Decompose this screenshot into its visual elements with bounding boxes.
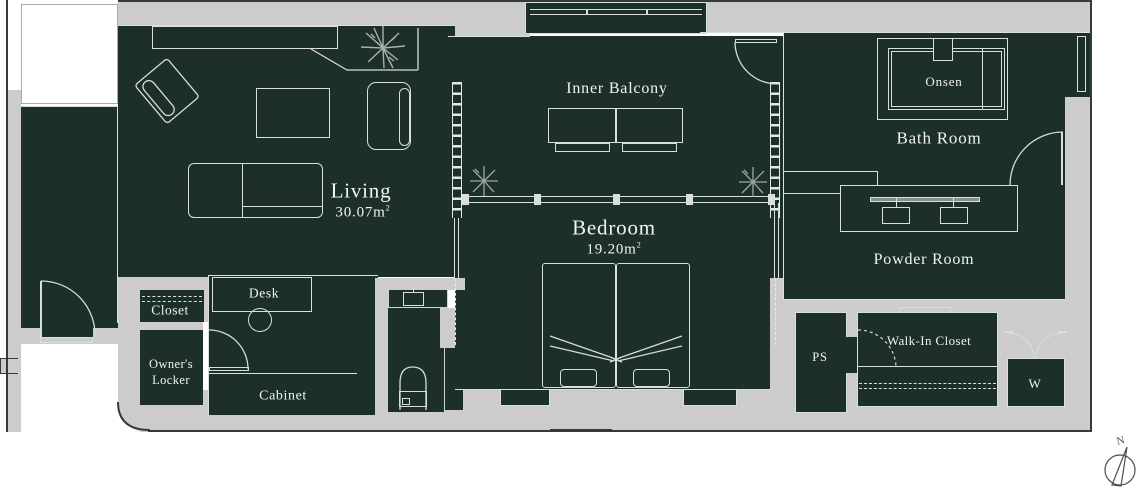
- area-value: 19.20: [586, 241, 624, 257]
- hall-line-right-a: [774, 203, 775, 278]
- walk-in-closet-name: Walk-In Closet: [887, 333, 971, 348]
- faucet-tick-left: [896, 198, 897, 208]
- toilet-sink: [403, 292, 424, 306]
- bench-seat-right: [622, 143, 677, 152]
- bench-back-left: [548, 108, 616, 143]
- window-track-line1: [530, 9, 702, 10]
- handrail-post-3: [613, 194, 620, 205]
- outline-bottom: [148, 430, 1092, 432]
- closet-name: Closet: [151, 303, 189, 318]
- vanity-counter: [840, 185, 1018, 232]
- faucet-tick-right: [953, 198, 954, 208]
- bath-window-glazing: [1077, 36, 1086, 92]
- wic-divider-line: [857, 366, 998, 367]
- room-label-laundry: W: [1028, 377, 1041, 391]
- owners-locker-line1: Owner's: [149, 356, 193, 372]
- inner-balcony-name: Inner Balcony: [566, 80, 667, 97]
- powder-name: Powder Room: [874, 251, 975, 268]
- bedroom-name: Bedroom: [572, 215, 656, 239]
- room-label-bath: Bath Room: [896, 130, 981, 149]
- vanity-mirror: [870, 197, 980, 202]
- wall-closet-band-lower: [140, 322, 203, 330]
- sofa-seam-horizontal: [242, 206, 322, 207]
- fixture-label-desk: Desk: [249, 287, 279, 302]
- pocket-door-dashed-left: [455, 278, 456, 345]
- handrail-post-1: [462, 194, 469, 205]
- floor-plan: Living 30.07m2 Inner Balcony Bedroom 19.…: [0, 0, 1142, 488]
- floor-toilet-east-nook: [445, 348, 463, 410]
- area-unit: m: [624, 241, 636, 257]
- living-name: Living: [331, 178, 392, 202]
- outline-bottom-mark: [550, 429, 612, 432]
- entry-threshold: [40, 337, 93, 343]
- wall-toilet-left: [375, 290, 388, 415]
- powder-shelf-line-upper: [783, 171, 877, 172]
- north-compass-icon: [1105, 447, 1135, 486]
- room-label-bedroom: Bedroom: [572, 216, 656, 239]
- floor-living: [118, 25, 455, 277]
- powder-bottom-edge: [783, 299, 1065, 300]
- corridor-top-edge: [21, 106, 118, 107]
- pillow-left: [560, 369, 597, 387]
- wic-hanger-rod: [859, 383, 996, 389]
- column-right: [683, 389, 737, 406]
- hall-line-right-b: [778, 203, 779, 278]
- bench-back-right: [616, 108, 683, 143]
- floor-entry-door-gap: [40, 328, 93, 337]
- area-exponent: 2: [637, 240, 642, 249]
- desk-name: Desk: [249, 286, 279, 301]
- toilet-sink-tick: [413, 287, 414, 292]
- bath-top-edge: [700, 32, 1090, 33]
- ps-name: PS: [812, 350, 828, 364]
- room-label-owners-locker: Owner's Locker: [149, 356, 193, 388]
- bath-door-leaf: [1061, 132, 1063, 185]
- outline-top: [118, 0, 1092, 2]
- outline-right: [1090, 0, 1092, 432]
- sink-left: [882, 207, 910, 224]
- room-label-closet: Closet: [151, 304, 189, 319]
- handrail-post-5: [768, 194, 775, 205]
- hall-line-left-b: [458, 218, 459, 278]
- chaise-cushion: [399, 88, 410, 146]
- bifold-tick-right: [1058, 331, 1067, 333]
- cabinet-top-edge: [209, 373, 357, 374]
- powder-shelf-line-lower: [783, 193, 840, 194]
- wic-threshold: [899, 307, 951, 313]
- bedroom-bottom-edge: [455, 389, 770, 390]
- coffee-table: [256, 88, 330, 138]
- outside-void: [21, 4, 118, 104]
- area-unit: m: [373, 204, 385, 220]
- wall-toilet-right: [440, 308, 455, 348]
- bench-seat-left: [555, 143, 610, 152]
- desk-door-leaf: [209, 367, 249, 371]
- compass-north-label: N: [1115, 434, 1126, 448]
- floor-entry-corridor: [21, 107, 118, 328]
- pillow-right: [633, 369, 670, 387]
- room-label-powder: Powder Room: [874, 251, 975, 269]
- room-area-living: 30.07m2: [335, 203, 390, 221]
- wall-stub-ps-wic: [846, 337, 857, 373]
- bifold-tick-left: [1004, 331, 1013, 333]
- room-label-ps: PS: [812, 351, 828, 365]
- bath-name: Bath Room: [896, 129, 981, 148]
- room-area-bedroom: 19.20m2: [586, 240, 641, 258]
- corridor-right-edge: [117, 107, 118, 323]
- window-track-line2: [530, 14, 702, 15]
- balcony-door-leaf: [735, 39, 777, 43]
- room-label-walk-in-closet: Walk-In Closet: [887, 334, 971, 348]
- hall-line-left-a: [454, 218, 455, 278]
- room-label-inner-balcony: Inner Balcony: [566, 80, 667, 98]
- wall-toilet-top: [375, 278, 465, 290]
- room-label-living: Living: [331, 179, 392, 202]
- balcony-handrail: [465, 196, 775, 203]
- north-letter: N: [1115, 434, 1126, 448]
- onsen-name: Onsen: [925, 74, 962, 89]
- sofa-seam-vertical: [242, 163, 243, 218]
- outline-left: [6, 0, 8, 432]
- balcony-top-edge: [448, 36, 530, 37]
- floor-walk-in-closet: [857, 312, 998, 407]
- room-label-cabinet: Cabinet: [259, 388, 307, 403]
- column-left: [500, 389, 550, 406]
- laundry-name: W: [1028, 376, 1041, 391]
- desk-stool: [248, 308, 272, 332]
- wall-tab: [0, 358, 18, 374]
- tv-board: [152, 26, 338, 49]
- area-exponent: 2: [386, 203, 391, 212]
- window-tick1: [586, 9, 588, 15]
- handrail-post-2: [534, 194, 541, 205]
- window-top-strip: [525, 2, 707, 34]
- entry-door-leaf: [40, 281, 42, 337]
- closet-hanger-rod: [142, 296, 202, 302]
- owners-locker-line2: Locker: [149, 372, 193, 388]
- window-tick2: [646, 9, 648, 15]
- powder-left-edge: [783, 33, 784, 299]
- wall-left-strip: [7, 90, 21, 432]
- wall-top-right: [700, 1, 1090, 33]
- onsen-divider: [982, 48, 983, 110]
- area-value: 30.07: [335, 204, 373, 220]
- powder-shelf-edge: [877, 171, 878, 185]
- wall-closet-band: [140, 277, 208, 290]
- onsen-faucet: [933, 38, 953, 61]
- pocket-door-dashed-right: [775, 278, 776, 345]
- toilet-flush-box: [402, 398, 410, 405]
- wall-top-thick: [448, 1, 530, 36]
- cabinet-name: Cabinet: [259, 388, 307, 403]
- shoji-screen-left: [452, 82, 462, 218]
- sofa: [188, 163, 323, 218]
- sink-right: [940, 207, 968, 224]
- handrail-post-4: [686, 194, 693, 205]
- fixture-label-onsen: Onsen: [925, 75, 962, 89]
